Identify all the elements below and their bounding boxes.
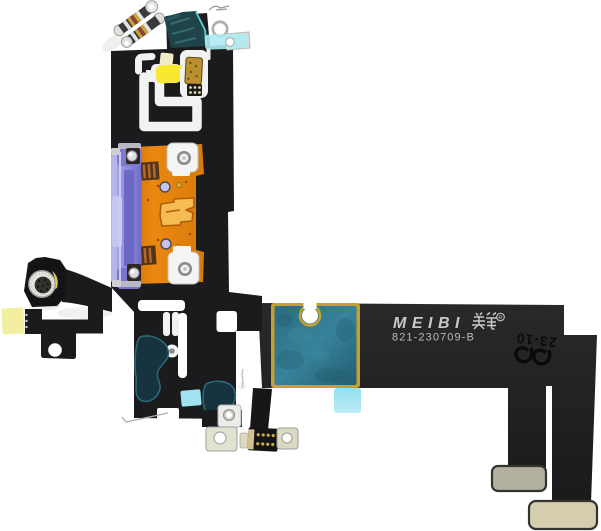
svg-text:821-230709-B: 821-230709-B xyxy=(392,332,475,344)
svg-text:R: R xyxy=(498,316,502,322)
svg-text:MEIBI: MEIBI xyxy=(393,315,465,332)
